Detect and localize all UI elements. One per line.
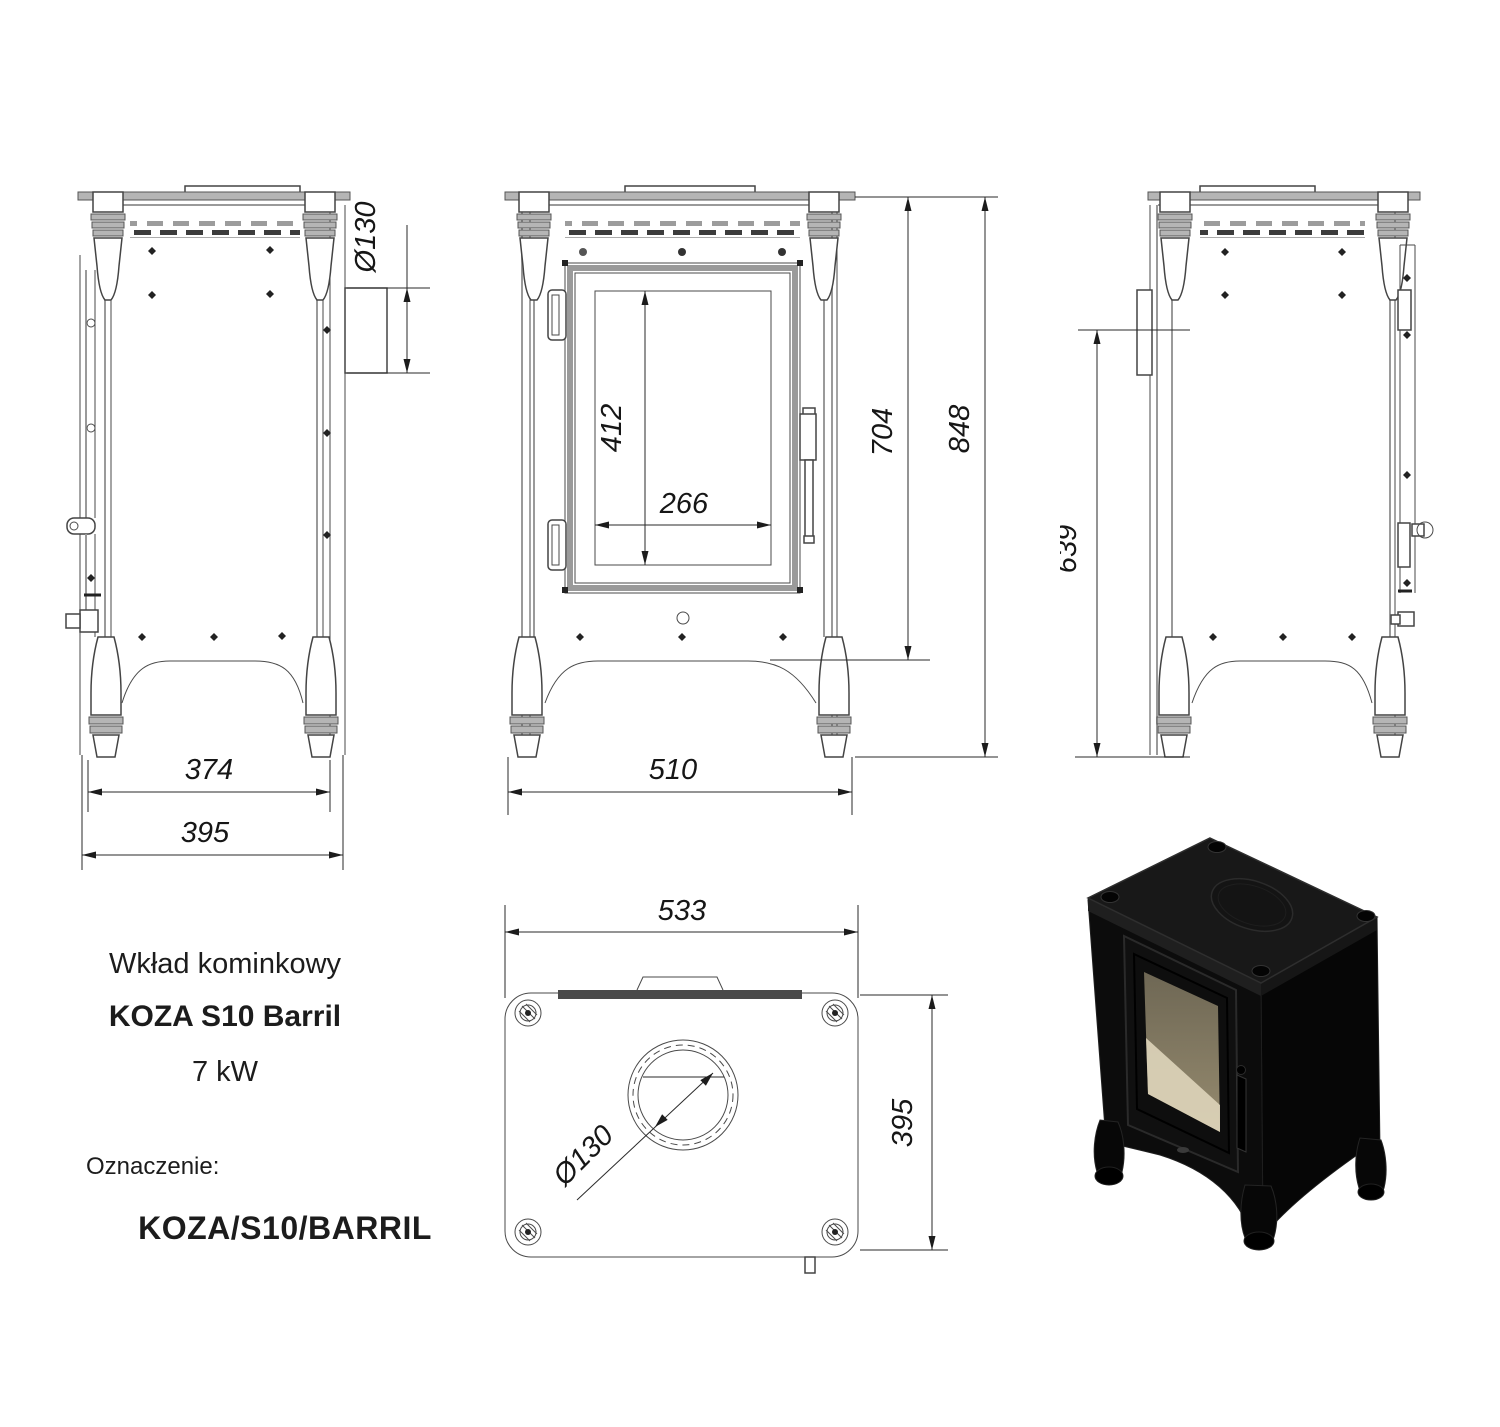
front-dim-overall-height: 848	[855, 197, 998, 757]
dim-label-top-depth: 533	[658, 895, 706, 927]
designation-code: KOZA/S10/BARRIL	[60, 1210, 510, 1247]
front-door-hinges	[548, 290, 566, 570]
back-flue-stub	[345, 288, 387, 373]
product-power: 7 kW	[60, 1056, 390, 1089]
stove-render	[1088, 838, 1386, 1250]
back-arch	[122, 661, 303, 703]
stove-foot	[1358, 1184, 1384, 1200]
stove-bolt	[1101, 892, 1119, 903]
top-dim-width: 395	[860, 995, 948, 1250]
top-plate-outline	[505, 977, 858, 1273]
side-vent-row	[1200, 221, 1365, 239]
top-rear-tab	[637, 977, 723, 990]
dim-label-top-width: 395	[887, 1098, 919, 1147]
stove-handle-knob	[1237, 1066, 1246, 1075]
side-corner-columns	[1158, 192, 1410, 300]
front-legs	[510, 637, 851, 757]
stove-bolt	[1208, 842, 1226, 853]
back-dim-leg-spacing: 374	[88, 754, 330, 812]
dim-label-back-leg-spacing: 374	[185, 754, 233, 786]
dim-label-back-flue: Ø130	[350, 202, 382, 274]
front-vent-row	[565, 221, 800, 239]
datasheet-page: Ø130 374 395	[0, 0, 1500, 1427]
stove-logo-mark	[1177, 1147, 1189, 1153]
top-view-drawing: Ø130 533 395	[490, 890, 960, 1290]
back-vent-row	[130, 221, 300, 239]
side-flue-stub	[1137, 290, 1152, 375]
front-dim-overall-width: 510	[508, 754, 852, 815]
front-top-plate	[505, 186, 855, 205]
top-bottom-tab	[805, 1257, 815, 1273]
stove-door-handle	[1237, 1075, 1246, 1152]
dim-label-front-glass-height: 412	[596, 404, 628, 452]
top-corner-screws	[515, 1000, 848, 1245]
stove-foot	[1244, 1232, 1274, 1250]
front-view-drawing: 412 266 510 704	[490, 175, 1000, 875]
top-front-edge-bar	[558, 990, 802, 999]
back-damper-handle	[66, 270, 101, 637]
top-flue-opening	[628, 1040, 738, 1150]
dim-label-back-overall-width: 395	[181, 817, 230, 849]
side-view-drawing: 639	[1060, 175, 1490, 775]
dim-label-top-flue: Ø130	[547, 1119, 621, 1193]
stove-bolt	[1357, 911, 1375, 922]
product-photo	[1040, 820, 1500, 1427]
back-rivet-dots	[138, 246, 331, 641]
product-category: Wkład kominkowy	[60, 948, 390, 981]
side-arch	[1192, 661, 1372, 703]
top-dim-flue: Ø130	[547, 1073, 713, 1200]
front-dim-glass-width: 266	[595, 488, 771, 529]
front-ashpit-knob	[677, 612, 689, 624]
dim-label-front-glass-width: 266	[659, 488, 709, 520]
back-legs	[89, 637, 338, 757]
product-model: KOZA S10 Barril	[60, 1000, 390, 1034]
dim-label-front-overall-height: 848	[944, 405, 976, 453]
dim-label-side-flue-height: 639	[1060, 525, 1083, 573]
top-dim-depth: 533	[505, 895, 858, 998]
back-corner-columns	[91, 192, 337, 300]
dim-label-front-overall-width: 510	[649, 754, 697, 786]
back-view-drawing: Ø130 374 395	[55, 175, 465, 875]
front-door-handle	[800, 408, 816, 543]
stove-bolt	[1252, 966, 1270, 977]
dim-label-front-body-height: 704	[867, 408, 899, 456]
front-arch	[545, 661, 816, 703]
designation-label: Oznaczenie:	[86, 1153, 219, 1181]
side-rivet-dots	[1209, 248, 1356, 641]
side-door-edge	[1391, 245, 1433, 626]
stove-foot	[1095, 1167, 1123, 1185]
